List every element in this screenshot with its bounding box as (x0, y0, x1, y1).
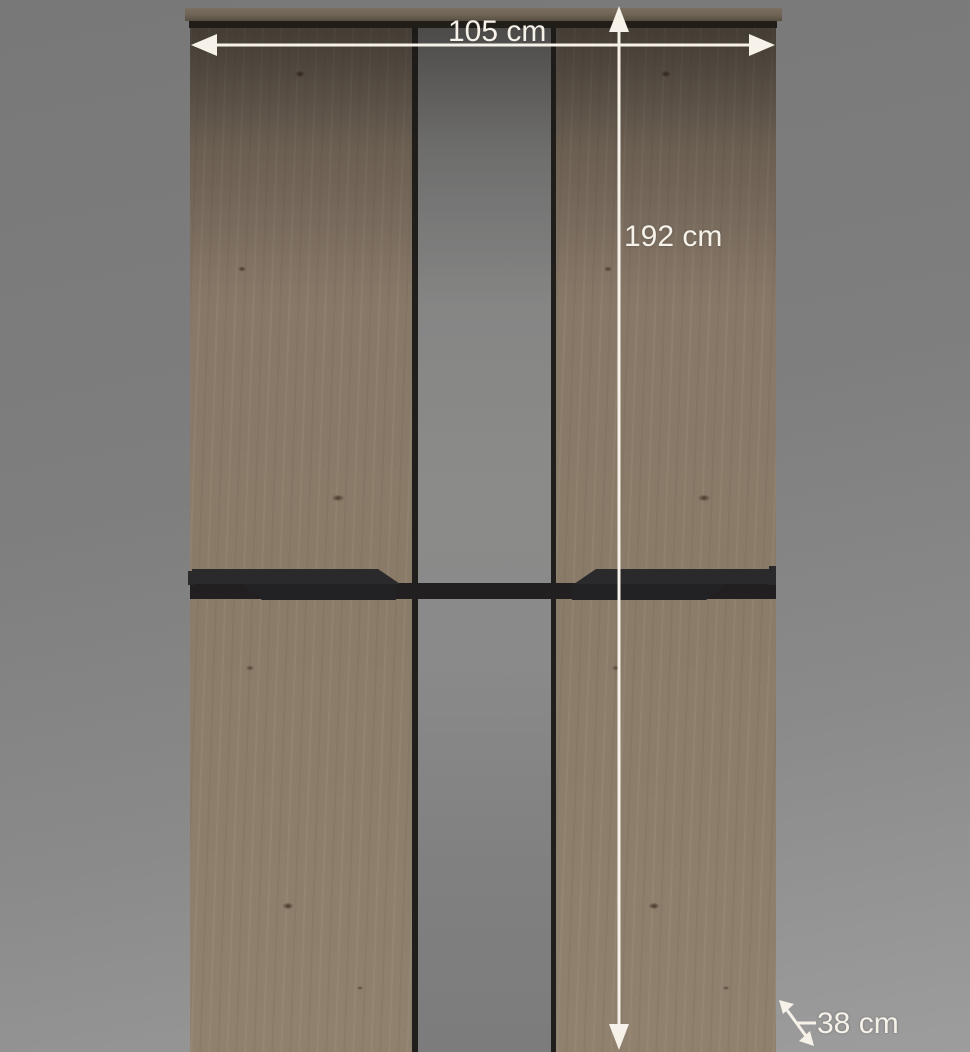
wardrobe-right-door (556, 28, 776, 1052)
product-image: 105 cm 192 cm 38 cm (0, 0, 970, 1052)
wardrobe-left-door (190, 28, 412, 1052)
wardrobe-mirror-strip (418, 28, 551, 1052)
depth-arrow-line (787, 1010, 806, 1036)
width-dimension-label: 105 cm (448, 17, 546, 47)
wardrobe-body (190, 28, 776, 1052)
depth-arrowhead-bottom (799, 1031, 814, 1046)
height-dimension-label: 192 cm (624, 222, 722, 252)
depth-arrowhead-top (779, 1000, 794, 1014)
depth-dimension-label: 38 cm (817, 1009, 899, 1039)
